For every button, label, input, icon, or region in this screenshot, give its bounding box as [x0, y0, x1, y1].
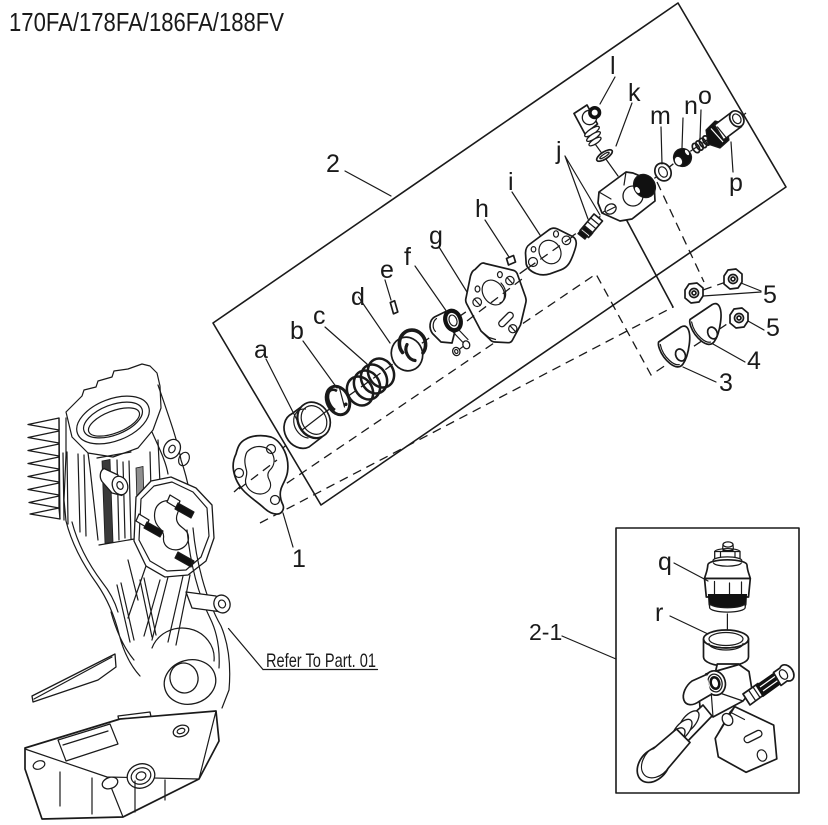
svg-text:i: i: [508, 168, 514, 196]
svg-text:a: a: [254, 336, 268, 364]
svg-text:1: 1: [292, 545, 306, 573]
svg-text:2-1: 2-1: [529, 619, 562, 645]
svg-text:q: q: [658, 548, 672, 576]
svg-text:e: e: [380, 256, 394, 284]
svg-text:o: o: [698, 82, 712, 110]
svg-text:f: f: [404, 243, 411, 271]
svg-text:d: d: [351, 283, 365, 311]
svg-text:5: 5: [766, 314, 780, 342]
svg-text:p: p: [729, 169, 743, 197]
svg-text:170FA/178FA/186FA/188FV: 170FA/178FA/186FA/188FV: [9, 7, 285, 37]
svg-text:b: b: [290, 317, 304, 345]
svg-text:m: m: [650, 102, 671, 130]
svg-text:r: r: [655, 599, 663, 627]
svg-text:c: c: [313, 302, 326, 330]
svg-text:Refer To Part. 01: Refer To Part. 01: [266, 650, 376, 672]
svg-text:3: 3: [719, 369, 733, 397]
svg-text:4: 4: [747, 347, 761, 375]
svg-text:n: n: [684, 92, 698, 120]
svg-text:5: 5: [763, 281, 777, 309]
svg-text:2: 2: [326, 150, 340, 178]
svg-text:j: j: [555, 137, 562, 165]
svg-text:k: k: [628, 79, 641, 107]
svg-text:h: h: [475, 195, 489, 223]
svg-text:l: l: [610, 52, 616, 80]
svg-text:g: g: [429, 222, 443, 250]
